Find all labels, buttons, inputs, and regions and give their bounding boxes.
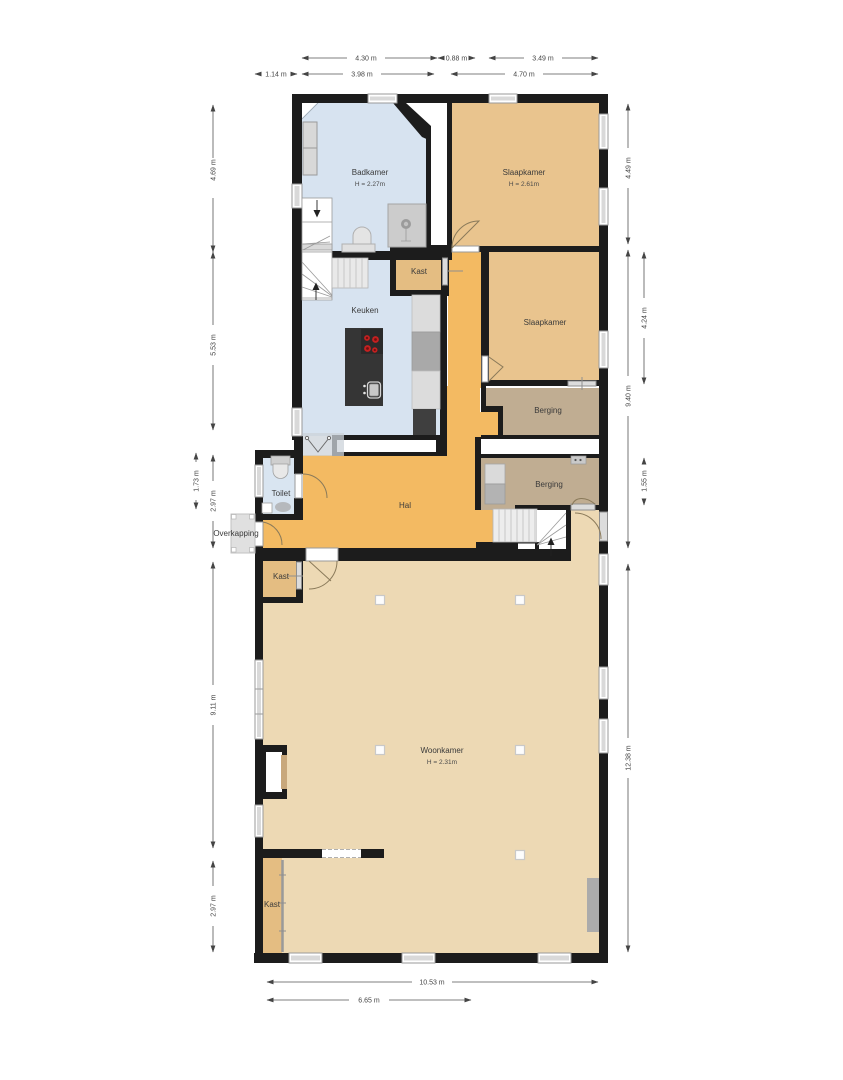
svg-text:1.55 m: 1.55 m xyxy=(642,470,649,492)
svg-text:Berging: Berging xyxy=(534,406,562,415)
svg-text:0.88 m: 0.88 m xyxy=(446,56,468,63)
svg-text:Berging: Berging xyxy=(535,480,563,489)
svg-text:1.14 m: 1.14 m xyxy=(265,72,287,79)
svg-text:6.65 m: 6.65 m xyxy=(358,998,380,1005)
svg-text:5.53 m: 5.53 m xyxy=(211,334,218,356)
svg-text:Toilet: Toilet xyxy=(272,489,291,498)
svg-text:3.98 m: 3.98 m xyxy=(351,72,373,79)
svg-text:4.24 m: 4.24 m xyxy=(642,307,649,329)
svg-text:Kast: Kast xyxy=(273,572,290,581)
svg-text:Badkamer: Badkamer xyxy=(352,168,389,177)
svg-text:3.49 m: 3.49 m xyxy=(532,56,554,63)
svg-text:4.69 m: 4.69 m xyxy=(211,159,218,181)
svg-text:Hal: Hal xyxy=(399,501,411,510)
svg-text:Slaapkamer: Slaapkamer xyxy=(503,168,546,177)
svg-text:Woonkamer: Woonkamer xyxy=(421,746,464,755)
svg-text:2.97 m: 2.97 m xyxy=(211,490,218,512)
svg-text:2.97 m: 2.97 m xyxy=(211,895,218,917)
svg-text:9.11 m: 9.11 m xyxy=(211,694,218,715)
svg-text:Kast: Kast xyxy=(264,900,281,909)
svg-text:Keuken: Keuken xyxy=(351,306,378,315)
svg-text:4.49 m: 4.49 m xyxy=(626,157,633,179)
svg-text:H = 2.27m: H = 2.27m xyxy=(355,181,385,188)
svg-text:4.30 m: 4.30 m xyxy=(355,56,377,63)
svg-text:9.40 m: 9.40 m xyxy=(626,385,633,407)
svg-text:1.73 m: 1.73 m xyxy=(194,470,201,492)
svg-text:Overkapping: Overkapping xyxy=(213,529,258,538)
svg-text:Slaapkamer: Slaapkamer xyxy=(524,318,567,327)
svg-text:4.70 m: 4.70 m xyxy=(513,72,535,79)
svg-text:H = 2.61m: H = 2.61m xyxy=(509,181,539,188)
svg-text:12.38 m: 12.38 m xyxy=(626,745,633,770)
svg-text:H = 2.31m: H = 2.31m xyxy=(427,759,457,766)
svg-text:Kast: Kast xyxy=(411,267,428,276)
svg-text:10.53 m: 10.53 m xyxy=(419,980,444,987)
